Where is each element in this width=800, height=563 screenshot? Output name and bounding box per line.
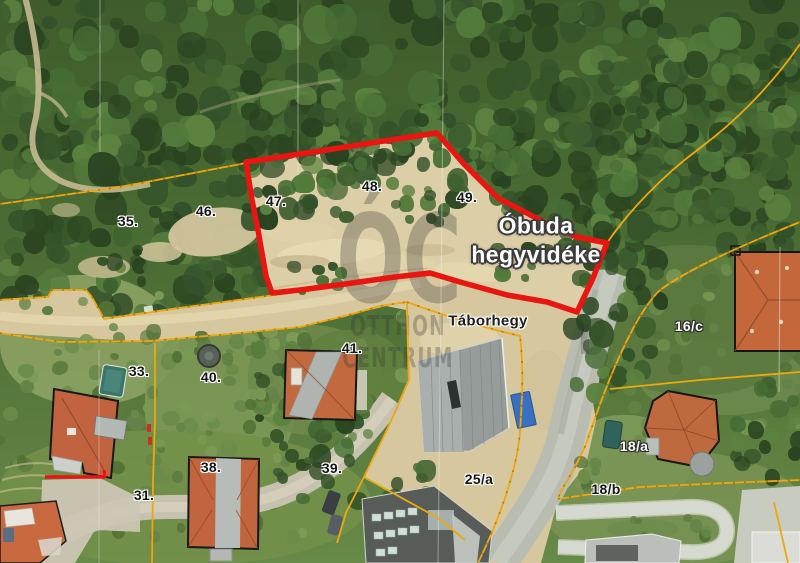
- tree-blob: [715, 172, 740, 193]
- tree-blob: [241, 103, 261, 122]
- tree-blob: [42, 16, 58, 29]
- tree-blob: [625, 127, 654, 154]
- tree-blob: [242, 203, 252, 213]
- tree-blob: [493, 108, 516, 127]
- tree-blob: [177, 523, 186, 533]
- tree-blob: [223, 290, 241, 311]
- tree-blob: [8, 210, 34, 232]
- tree-blob: [197, 0, 211, 12]
- tree-blob: [398, 149, 410, 163]
- tree-blob: [278, 24, 301, 49]
- tree-blob: [703, 188, 733, 223]
- tree-blob: [260, 126, 280, 147]
- tree-blob: [761, 377, 775, 389]
- tree-blob: [515, 14, 533, 32]
- tree-blob: [30, 168, 60, 195]
- tree-blob: [272, 38, 285, 53]
- tree-blob: [492, 154, 508, 172]
- tree-blob: [279, 197, 299, 220]
- tree-blob: [623, 385, 636, 396]
- tree-blob: [262, 375, 273, 385]
- tree-blob: [2, 134, 18, 151]
- tree-blob: [457, 177, 486, 209]
- tree-blob: [470, 36, 490, 59]
- tree-blob: [347, 492, 367, 510]
- tree-blob: [738, 61, 760, 85]
- watermark-word2: CENTRUM: [336, 342, 460, 374]
- tree-blob: [666, 269, 682, 284]
- tree-blob: [568, 151, 592, 173]
- tree-blob: [214, 273, 236, 293]
- tree-blob: [172, 471, 184, 483]
- tree-blob: [144, 100, 157, 112]
- tree-blob: [253, 206, 278, 230]
- tree-blob: [103, 407, 113, 418]
- tree-blob: [71, 87, 101, 121]
- tree-blob: [148, 151, 175, 182]
- tree-blob: [0, 259, 19, 276]
- tree-blob: [627, 148, 642, 163]
- tree-blob: [715, 171, 730, 188]
- tree-blob: [693, 107, 710, 122]
- tree-blob: [291, 174, 315, 194]
- tree-blob: [667, 120, 681, 134]
- tree-blob: [112, 525, 126, 540]
- tree-blob: [446, 124, 476, 151]
- tree-blob: [100, 176, 122, 201]
- tree-blob: [69, 41, 89, 62]
- tree-blob: [390, 151, 408, 166]
- tree-blob: [145, 2, 165, 22]
- tree-blob: [143, 403, 152, 413]
- tree-blob: [20, 163, 36, 179]
- tree-blob: [342, 409, 352, 418]
- tree-blob: [337, 166, 357, 187]
- tree-blob: [241, 207, 265, 232]
- tree-blob: [663, 58, 690, 84]
- tree-blob: [685, 86, 712, 115]
- tree-blob: [574, 456, 588, 468]
- tree-blob: [609, 228, 622, 242]
- tree-blob: [148, 496, 158, 506]
- tree-blob: [113, 332, 124, 342]
- tree-blob: [595, 259, 606, 270]
- tree-blob: [732, 181, 762, 212]
- tree-blob: [429, 89, 449, 110]
- tree-blob: [314, 69, 343, 98]
- tree-blob: [727, 136, 747, 160]
- tree-blob: [356, 93, 386, 117]
- tree-blob: [300, 398, 314, 410]
- tree-blob: [174, 224, 188, 237]
- tree-blob: [756, 208, 769, 224]
- tree-blob: [161, 353, 176, 370]
- tree-blob: [316, 169, 335, 189]
- tree-blob: [589, 170, 611, 190]
- tree-blob: [298, 302, 308, 313]
- tree-blob: [175, 138, 189, 153]
- tree-blob: [643, 147, 666, 169]
- tree-blob: [674, 190, 706, 216]
- tree-blob: [386, 494, 397, 508]
- tree-blob: [147, 386, 158, 399]
- tree-blob: [620, 223, 644, 243]
- tree-blob: [410, 496, 427, 512]
- tree-blob: [757, 112, 778, 130]
- tree-blob: [280, 456, 291, 468]
- tree-blob: [531, 3, 560, 28]
- tree-blob: [134, 80, 153, 97]
- tree-blob: [702, 274, 720, 289]
- tree-blob: [546, 93, 575, 118]
- tree-blob: [66, 130, 83, 148]
- tree-blob: [642, 7, 663, 28]
- tree-blob: [611, 56, 631, 73]
- tree-blob: [720, 152, 732, 164]
- tree-blob: [31, 68, 50, 85]
- tree-blob: [641, 416, 658, 434]
- tree-blob: [754, 54, 773, 70]
- tree-blob: [489, 186, 505, 206]
- tree-blob: [749, 239, 767, 259]
- tree-blob: [662, 170, 684, 193]
- tree-blob: [296, 144, 316, 166]
- tree-blob: [270, 429, 284, 443]
- tree-blob: [596, 221, 616, 239]
- tree-blob: [19, 145, 42, 166]
- tree-blob: [245, 399, 256, 410]
- tree-blob: [759, 440, 771, 455]
- tree-blob: [562, 74, 582, 96]
- tree-blob: [696, 115, 710, 127]
- tree-blob: [577, 1, 604, 28]
- tree-blob: [638, 109, 657, 129]
- tree-blob: [573, 141, 587, 155]
- tree-blob: [190, 240, 202, 255]
- tree-blob: [235, 72, 261, 102]
- tree-blob: [107, 253, 124, 271]
- tree-blob: [775, 222, 795, 238]
- tree-blob: [222, 229, 235, 240]
- tree-blob: [422, 544, 439, 563]
- tree-blob: [201, 517, 218, 531]
- forest-footpath: [25, 0, 150, 190]
- tree-blob: [243, 420, 255, 434]
- tree-blob: [744, 155, 764, 174]
- tree-blob: [599, 371, 622, 395]
- tree-blob: [200, 215, 220, 233]
- tree-blob: [277, 131, 289, 145]
- tree-blob: [15, 4, 27, 17]
- tree-blob: [1, 86, 33, 117]
- tree-blob: [635, 518, 642, 525]
- tree-blob: [431, 79, 447, 96]
- tree-blob: [137, 113, 160, 137]
- tree-blob: [709, 133, 736, 158]
- tree-blob: [249, 515, 264, 532]
- tree-blob: [544, 118, 559, 132]
- tree-blob: [587, 217, 605, 235]
- tree-blob: [750, 111, 774, 137]
- tree-blob: [0, 435, 5, 445]
- tree-blob: [462, 174, 490, 206]
- tree-blob: [320, 144, 339, 166]
- u-turn-road: [556, 507, 727, 552]
- tree-blob: [681, 53, 710, 79]
- tree-blob: [634, 317, 656, 340]
- tree-blob: [605, 259, 618, 274]
- grass-patch: [0, 275, 180, 405]
- tree-blob: [312, 265, 325, 275]
- tree-blob: [244, 57, 267, 78]
- tree-blob: [477, 103, 493, 120]
- tree-blob: [348, 432, 357, 443]
- tree-blob: [285, 63, 318, 93]
- tree-blob: [499, 149, 526, 179]
- tree-blob: [613, 353, 629, 369]
- tree-blob: [765, 194, 791, 221]
- tree-blob: [261, 135, 276, 149]
- tree-blob: [709, 122, 736, 145]
- tree-blob: [717, 348, 727, 357]
- tree-blob: [528, 201, 544, 215]
- tree-blob: [720, 135, 744, 155]
- house-18a: [645, 391, 719, 476]
- tree-blob: [687, 186, 713, 216]
- tree-blob: [214, 151, 229, 164]
- tree-blob: [657, 23, 677, 40]
- tree-blob: [279, 441, 288, 452]
- tree-blob: [626, 268, 646, 291]
- tree-blob: [46, 68, 75, 92]
- tree-blob: [714, 111, 746, 147]
- tree-blob: [17, 458, 33, 472]
- tree-blob: [536, 254, 545, 263]
- tree-blob: [251, 31, 283, 63]
- modern-building-south: [585, 534, 681, 563]
- tree-blob: [658, 157, 674, 171]
- tree-blob: [3, 407, 18, 421]
- tree-blob: [660, 119, 686, 149]
- tree-blob: [100, 255, 119, 275]
- tree-blob: [778, 179, 792, 190]
- tree-blob: [574, 122, 603, 147]
- tree-blob: [362, 394, 375, 405]
- tree-blob: [618, 247, 638, 270]
- tree-blob: [355, 88, 382, 110]
- tree-blob: [525, 243, 541, 258]
- tree-blob: [772, 131, 796, 158]
- tree-blob: [108, 95, 132, 119]
- tree-blob: [261, 90, 282, 110]
- tree-blob: [183, 418, 197, 433]
- tree-blob: [595, 230, 619, 253]
- tree-blob: [593, 169, 620, 192]
- tree-blob: [557, 201, 570, 215]
- tree-blob: [78, 297, 88, 307]
- tree-blob: [268, 134, 293, 164]
- tree-blob: [548, 199, 576, 227]
- tree-blob: [179, 116, 205, 138]
- tree-blob: [729, 63, 754, 91]
- road-south: [498, 272, 612, 563]
- tree-blob: [204, 112, 221, 131]
- tree-blob: [246, 242, 273, 271]
- tree-blob: [609, 218, 622, 233]
- tree-blob: [501, 191, 518, 210]
- tree-blob: [137, 167, 168, 205]
- tree-blob: [115, 262, 126, 274]
- tree-blob: [278, 186, 290, 197]
- tree-blob: [127, 224, 143, 240]
- tree-blob: [272, 393, 281, 402]
- tree-blob: [709, 99, 726, 113]
- tree-blob: [253, 148, 265, 161]
- tree-blob: [592, 129, 616, 158]
- tree-blob: [649, 0, 665, 14]
- tree-blob: [303, 206, 314, 215]
- tree-blob: [605, 150, 621, 165]
- tree-blob: [581, 479, 593, 492]
- tree-blob: [23, 209, 49, 238]
- tree-blob: [417, 157, 430, 172]
- tree-blob: [178, 42, 196, 64]
- tree-blob: [155, 439, 166, 448]
- tree-blob: [258, 400, 266, 408]
- tree-blob: [687, 128, 710, 147]
- tree-blob: [321, 90, 346, 110]
- tree-blob: [211, 519, 222, 530]
- tree-blob: [162, 122, 189, 147]
- house-16c: [731, 246, 800, 351]
- tree-blob: [595, 135, 620, 156]
- tree-blob: [606, 210, 622, 229]
- tree-blob: [716, 12, 742, 35]
- tree-blob: [429, 139, 442, 151]
- tree-blob: [92, 387, 107, 403]
- tree-blob: [779, 58, 798, 77]
- tree-blob: [586, 233, 602, 250]
- tree-blob: [791, 130, 800, 145]
- tree-blob: [641, 74, 660, 97]
- tree-blob: [294, 116, 311, 132]
- tree-blob: [534, 218, 559, 244]
- tree-blob: [226, 66, 245, 86]
- tree-blob: [106, 301, 121, 317]
- tree-blob: [159, 211, 182, 230]
- tree-blob: [658, 33, 677, 54]
- tree-blob: [131, 118, 162, 151]
- tree-blob: [626, 369, 645, 385]
- tree-blob: [652, 207, 682, 232]
- pavement-bottom-right: [734, 486, 800, 563]
- tree-blob: [329, 135, 348, 150]
- tree-blob: [157, 446, 165, 453]
- tree-blob: [109, 323, 119, 331]
- tree-blob: [700, 85, 718, 101]
- tree-blob: [44, 134, 70, 156]
- tree-blob: [416, 460, 436, 482]
- tree-blob: [330, 45, 350, 64]
- tree-blob: [273, 410, 292, 426]
- tree-blob: [146, 454, 161, 467]
- tree-blob: [629, 134, 645, 151]
- tree-blob: [456, 7, 485, 38]
- tree-blob: [252, 215, 270, 234]
- tree-blob: [502, 159, 517, 176]
- tree-blob: [206, 430, 213, 436]
- tree-blob: [110, 353, 119, 360]
- tree-blob: [651, 164, 673, 189]
- tree-blob: [533, 222, 546, 233]
- tree-blob: [301, 156, 323, 174]
- tree-blob: [194, 347, 203, 355]
- tree-blob: [184, 115, 215, 147]
- tree-blob: [634, 245, 661, 267]
- tree-blob: [752, 152, 771, 171]
- tree-blob: [162, 411, 180, 426]
- tree-blob: [412, 8, 426, 22]
- watermark-monogram: ÓC: [336, 210, 460, 310]
- tree-blob: [199, 86, 232, 121]
- tree-blob: [372, 148, 397, 176]
- tree-blob: [504, 248, 513, 257]
- tree-blob: [444, 0, 468, 22]
- tree-blob: [723, 131, 747, 153]
- tree-blob: [617, 292, 638, 315]
- tree-blob: [391, 477, 403, 491]
- tree-blob: [352, 17, 381, 46]
- tree-blob: [306, 103, 339, 137]
- tree-blob: [609, 209, 623, 225]
- tree-blob: [19, 297, 31, 310]
- tree-blob: [656, 108, 672, 123]
- tree-blob: [488, 124, 514, 146]
- tree-blob: [498, 151, 509, 160]
- tree-blob: [753, 304, 762, 313]
- tree-blob: [657, 75, 685, 98]
- tree-blob: [147, 382, 156, 392]
- tree-blob: [754, 62, 773, 80]
- tree-blob: [226, 40, 239, 53]
- tree-blob: [22, 94, 51, 121]
- tree-blob: [540, 70, 562, 96]
- tree-blob: [84, 124, 112, 156]
- tree-blob: [610, 170, 638, 197]
- tree-blob: [766, 167, 789, 189]
- tree-blob: [626, 378, 637, 387]
- tree-blob: [149, 433, 159, 442]
- tree-blob: [751, 221, 766, 237]
- tree-blob: [418, 118, 438, 135]
- tree-blob: [598, 74, 615, 90]
- tree-blob: [414, 113, 429, 127]
- tree-blob: [262, 437, 271, 448]
- tree-blob: [297, 80, 309, 94]
- tree-blob: [415, 510, 431, 527]
- tree-blob: [27, 127, 45, 146]
- tree-blob: [281, 365, 296, 382]
- tree-blob: [229, 334, 245, 349]
- tree-blob: [659, 115, 687, 142]
- tree-blob: [310, 145, 322, 155]
- tree-blob: [534, 235, 553, 252]
- tree-blob: [607, 77, 622, 89]
- tree-blob: [197, 337, 211, 354]
- tree-blob: [701, 526, 712, 539]
- tree-blob: [610, 131, 626, 149]
- tree-blob: [256, 374, 269, 389]
